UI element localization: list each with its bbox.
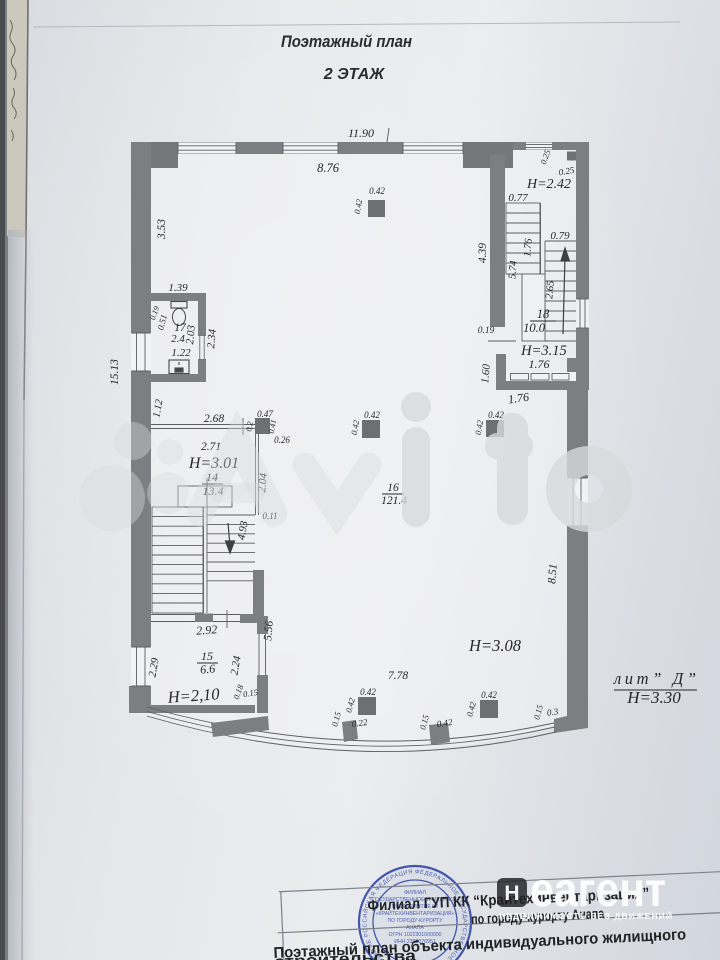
svg-text:0.77: 0.77	[508, 192, 528, 204]
svg-text:0.47: 0.47	[257, 409, 273, 419]
svg-text:10.0: 10.0	[523, 321, 546, 335]
svg-text:5.74: 5.74	[507, 259, 520, 279]
svg-text:2.68: 2.68	[204, 413, 224, 425]
svg-text:H=3.08: H=3.08	[468, 636, 522, 655]
svg-text:2.34: 2.34	[205, 328, 219, 349]
svg-text:лит” Д”: лит” Д”	[613, 669, 696, 688]
svg-text:1.76: 1.76	[529, 357, 550, 371]
svg-text:Поэтажный план: Поэтажный план	[281, 33, 412, 51]
svg-text:4.39: 4.39	[477, 243, 489, 263]
svg-text:0.26: 0.26	[274, 435, 290, 445]
svg-text:5.56: 5.56	[262, 620, 276, 641]
svg-text:2.4: 2.4	[171, 333, 185, 345]
svg-text:0.42: 0.42	[481, 690, 497, 700]
svg-text:H=3.30: H=3.30	[626, 688, 681, 707]
svg-text:0.42: 0.42	[369, 186, 385, 196]
svg-text:2.65: 2.65	[544, 280, 557, 299]
svg-text:18: 18	[537, 307, 550, 321]
svg-text:0.3: 0.3	[546, 706, 559, 718]
svg-text:15.13: 15.13	[109, 359, 121, 385]
svg-text:3.53: 3.53	[156, 219, 168, 240]
svg-text:1.76: 1.76	[522, 237, 535, 257]
svg-text:Н: Н	[504, 882, 519, 905]
svg-text:7.78: 7.78	[388, 670, 408, 682]
svg-text:11.90: 11.90	[348, 126, 374, 140]
svg-text:6.6: 6.6	[200, 661, 216, 676]
svg-text:0.42: 0.42	[364, 410, 380, 420]
svg-text:1.76: 1.76	[507, 390, 530, 407]
svg-text:2.03: 2.03	[184, 324, 198, 345]
svg-text:1.22: 1.22	[171, 347, 191, 359]
svg-text:2 ЭТАЖ: 2 ЭТАЖ	[323, 66, 386, 83]
svg-text:8.76: 8.76	[317, 161, 340, 175]
svg-text:0.79: 0.79	[550, 230, 570, 242]
svg-text:НЕДВИЖИМОСТЬ БЕЗ ДВИЖЕНИЙ: НЕДВИЖИМОСТЬ БЕЗ ДВИЖЕНИЙ	[499, 910, 673, 921]
svg-text:H=2.42: H=2.42	[526, 177, 571, 192]
svg-text:H=2,10: H=2,10	[166, 684, 221, 707]
svg-text:0.19: 0.19	[478, 326, 495, 336]
svg-text:1.60: 1.60	[479, 363, 493, 384]
svg-text:2.92: 2.92	[196, 622, 218, 637]
svg-text:0.42: 0.42	[360, 687, 376, 697]
svg-text:8.51: 8.51	[546, 563, 560, 584]
svg-text:1.39: 1.39	[168, 282, 188, 294]
svg-text:16: 16	[387, 482, 399, 494]
svg-text:ПО ГОРОДУ-КУРОРТУ: ПО ГОРОДУ-КУРОРТУ	[387, 918, 443, 924]
svg-text:еагент: еагент	[530, 864, 666, 917]
